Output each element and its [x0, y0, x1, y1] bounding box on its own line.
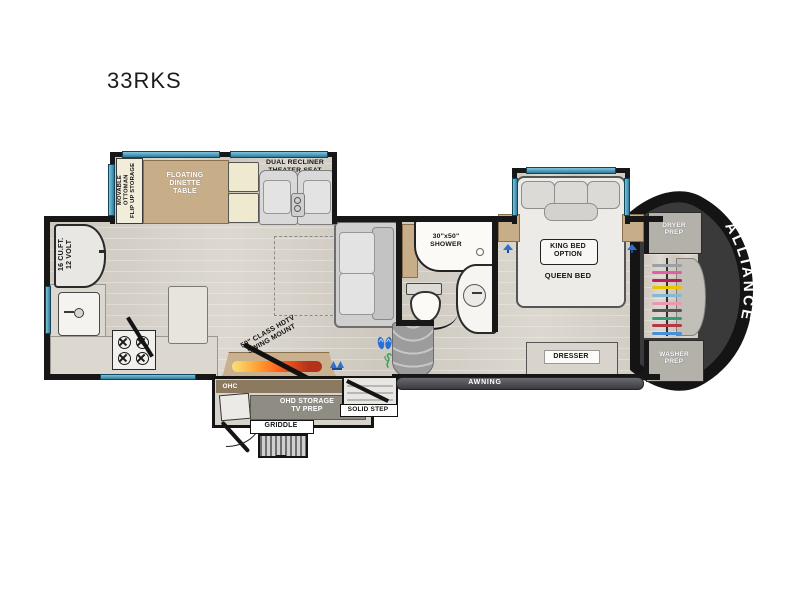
window: [512, 178, 518, 216]
window: [122, 151, 220, 158]
window: [108, 164, 115, 216]
window: [624, 178, 630, 216]
kitchen-faucet: [74, 308, 84, 318]
hanger: [652, 294, 682, 297]
griddle-tab: [276, 455, 286, 458]
wall: [332, 216, 517, 222]
hanger: [652, 332, 682, 335]
washer-prep-label: WASHER PREP: [646, 351, 702, 366]
dryer-prep-label: DRYER PREP: [648, 222, 700, 237]
cupholder: [294, 205, 301, 212]
slide-clearance-outline: [274, 236, 338, 316]
outdoor-tv: [219, 393, 251, 422]
king-bed-option-label: KING BED OPTION: [540, 243, 596, 259]
fridge-handle: [99, 250, 106, 253]
closet-wall: [644, 340, 649, 378]
dinette-chair: [228, 193, 259, 223]
kitchen-island: [168, 286, 208, 344]
hanger: [652, 324, 682, 327]
bath-wall: [396, 222, 402, 326]
stove-burner: [118, 352, 131, 365]
stove-burner: [118, 336, 131, 349]
queen-bed-label: QUEEN BED: [532, 272, 604, 280]
lamp-icon: [626, 243, 638, 254]
shower-drain: [476, 248, 484, 256]
plant-icon: [380, 352, 396, 368]
vanity-faucet: [472, 292, 482, 294]
closet-wall: [644, 222, 649, 254]
dinette-table-label: FLOATING DINETTE TABLE: [143, 172, 227, 195]
flip-flops-icon: [376, 334, 394, 352]
wall: [44, 216, 114, 222]
hanger: [652, 309, 682, 312]
hanger: [652, 271, 682, 274]
slideout-wall: [332, 152, 337, 224]
sofa-cushion: [339, 232, 375, 274]
window: [230, 151, 328, 158]
hanger: [652, 317, 682, 320]
floor-plan: 33RKS ALLIANCE DRYER PREP WASHER PREP 16…: [0, 0, 800, 600]
hanger: [652, 279, 682, 282]
entry-steps: [392, 322, 434, 377]
window: [526, 167, 616, 174]
sofa-back: [372, 227, 394, 320]
window: [100, 374, 196, 380]
cupholder: [294, 197, 301, 204]
theater-seat-cushion: [263, 180, 291, 214]
dresser-label: DRESSER: [544, 353, 598, 361]
lamp-icon: [502, 243, 514, 254]
ottoman-storage-label: MOVABLE OTTOMAN FLIP UP STORAGE: [117, 159, 136, 221]
closet-hangers: [652, 259, 682, 340]
solid-step-label: SOLID STEP: [340, 406, 396, 413]
stove-burner: [136, 352, 149, 365]
shower-label: 30"x50" SHOWER: [418, 233, 474, 248]
refrigerator-label: 16 CU.FT. 12 VOLT: [58, 228, 74, 280]
griddle-label: GRIDDLE: [250, 422, 312, 430]
hanger: [652, 264, 682, 267]
awning-label: AWNING: [430, 379, 540, 387]
sconce-icon: [330, 360, 344, 372]
vanity-sink: [463, 284, 486, 307]
hanger: [652, 302, 682, 305]
theater-seat-cushion: [303, 180, 331, 214]
hanger: [652, 286, 682, 289]
bath-wall: [396, 320, 434, 326]
bath-wall: [492, 222, 498, 332]
ohc-left-label: OHC: [218, 383, 242, 390]
kitchen-faucet-lever: [64, 311, 74, 313]
sofa-cushion: [339, 273, 375, 315]
page-title: 33RKS: [107, 68, 182, 94]
bed-cushion: [544, 203, 598, 221]
window: [45, 286, 51, 334]
